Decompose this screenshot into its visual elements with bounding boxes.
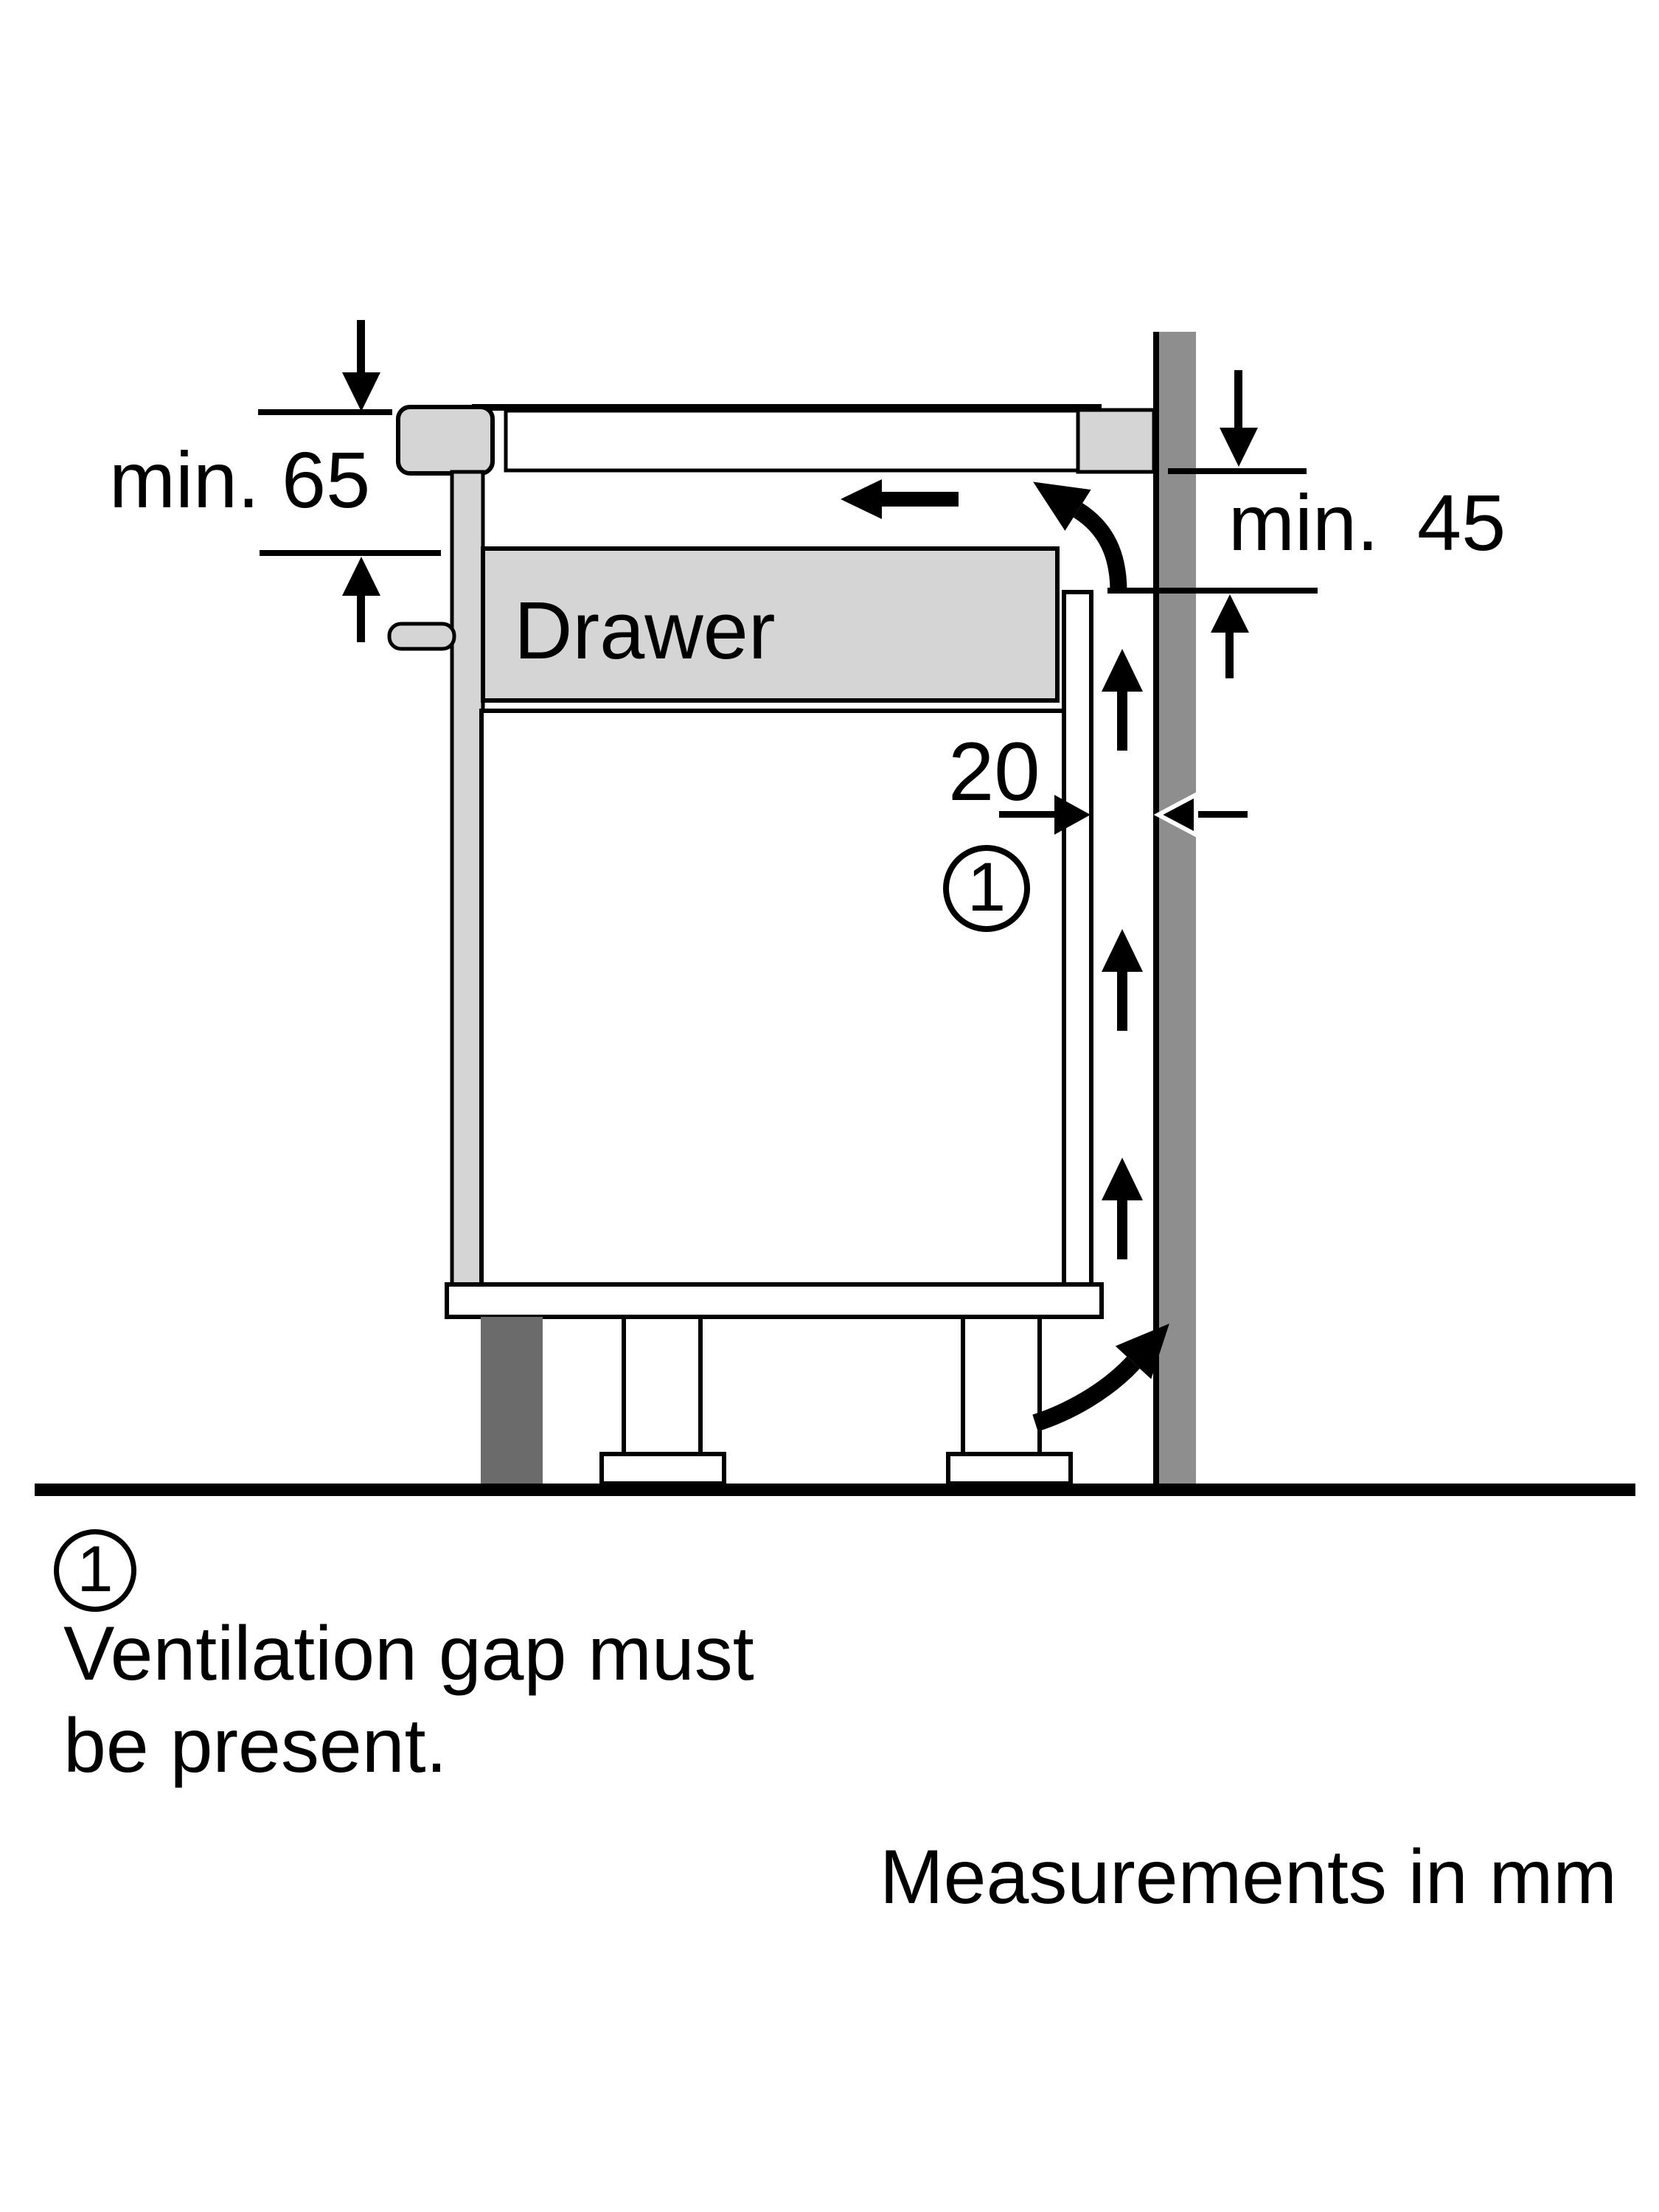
plinth	[481, 1317, 543, 1484]
back-panel	[1064, 592, 1091, 1284]
callout-1-number: 1	[967, 847, 1006, 927]
wall	[1159, 332, 1196, 1484]
gap-dim-label-20: 20	[948, 731, 1040, 813]
airflow-up-arrow-3-head	[1102, 1158, 1143, 1200]
hob-top-surface-line	[472, 404, 1102, 411]
cabinet-side-panel	[452, 472, 483, 1284]
dim-label-min-45: min. 45	[1228, 483, 1506, 563]
airflow-up-arrow-3-stem	[1117, 1197, 1127, 1259]
installation-diagram-page: min. 65 min. 45 Drawer 20 1 1 Ventilatio…	[0, 0, 1659, 2212]
drawer-handle	[389, 624, 454, 649]
airflow-curved-arrow-bottom	[1035, 1363, 1133, 1423]
cabinet-bottom-shelf	[447, 1284, 1102, 1317]
dim-45-down-arrow-stem	[1234, 370, 1242, 431]
dim-45-down-arrow-head	[1220, 428, 1258, 467]
dim-45-upper-line	[1168, 468, 1307, 474]
dim-65-down-arrow-head	[342, 372, 380, 411]
airflow-up-arrow-2-head	[1102, 929, 1143, 972]
dim-65-up-arrow-stem	[357, 594, 365, 642]
worktop	[506, 411, 1078, 470]
airflow-up-arrow-1-head	[1102, 649, 1143, 692]
hob-housing-right-block	[1078, 410, 1154, 472]
legend-1-marker: 1	[54, 1529, 136, 1612]
legend-text-line1: Ventilation gap must	[63, 1615, 754, 1692]
dim-45-up-arrow-head	[1211, 594, 1249, 633]
dim-45-lower-line	[1107, 588, 1318, 594]
legend-text-line2: be present.	[63, 1708, 447, 1784]
airflow-up-arrow-1-stem	[1117, 689, 1127, 751]
airflow-left-arrow-stem	[879, 492, 959, 507]
floor-line	[35, 1484, 1635, 1496]
legend-1-number: 1	[77, 1531, 114, 1607]
left-leg	[624, 1317, 700, 1457]
drawer-label: Drawer	[514, 591, 776, 672]
hob-left-edge-block	[398, 407, 493, 473]
wall-edge-line	[1153, 332, 1159, 1484]
airflow-curved-arrow-top	[1078, 510, 1119, 591]
dim-label-min-65: min. 65	[109, 440, 370, 520]
left-leg-foot	[602, 1454, 724, 1484]
right-leg	[963, 1317, 1040, 1457]
measurements-note: Measurements in mm	[880, 1839, 1617, 1916]
dim-65-lower-line	[260, 550, 441, 556]
airflow-up-arrow-2-stem	[1117, 969, 1127, 1031]
right-leg-foot	[948, 1454, 1071, 1484]
dim-45-up-arrow-stem	[1225, 631, 1234, 678]
airflow-left-arrow-head	[841, 479, 882, 519]
dim-65-up-arrow-head	[342, 557, 380, 596]
gap-dim-left-arrow-stem	[1194, 811, 1248, 818]
callout-1-marker: 1	[943, 845, 1030, 932]
dim-65-upper-line	[258, 409, 392, 415]
dim-65-down-arrow-stem	[357, 320, 365, 376]
